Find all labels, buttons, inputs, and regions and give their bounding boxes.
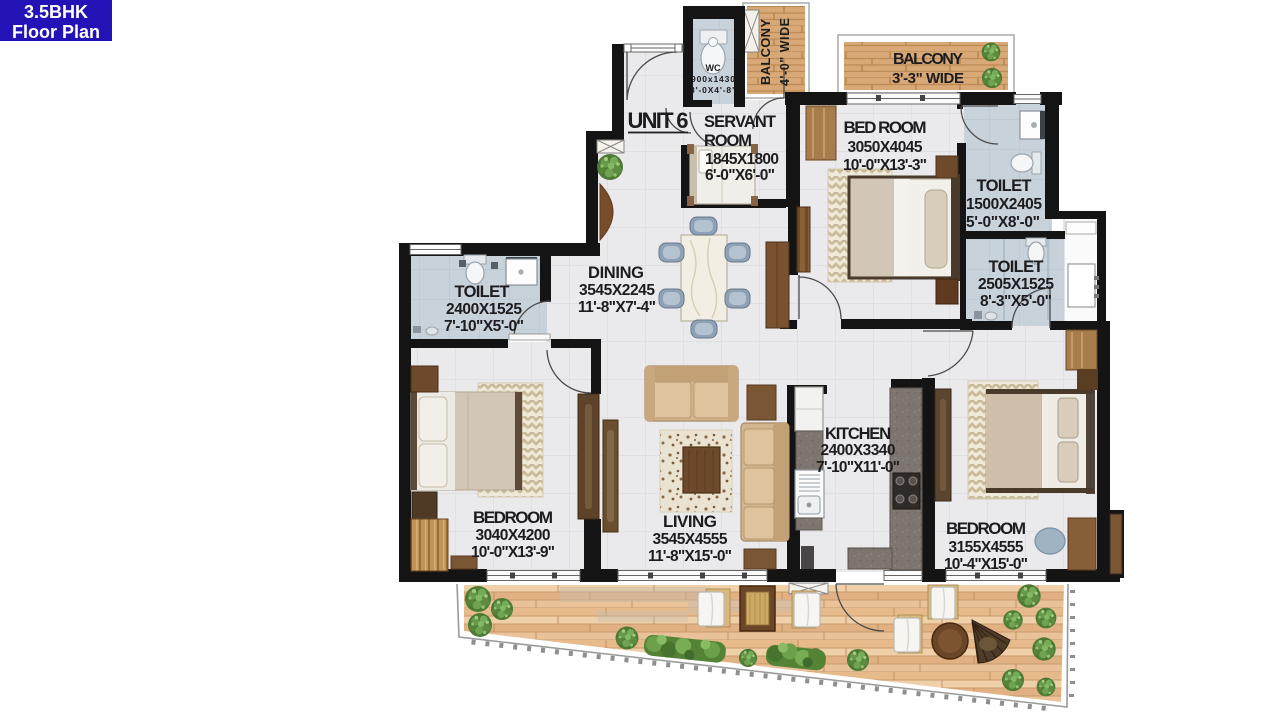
svg-text:3050X4045: 3050X4045 [848, 139, 923, 156]
svg-text:BEDROOM: BEDROOM [946, 519, 1026, 538]
svg-text:3'-0X4'-8": 3'-0X4'-8" [690, 85, 736, 95]
svg-text:11'-8"X15'-0": 11'-8"X15'-0" [648, 548, 732, 565]
svg-text:1500X2405: 1500X2405 [966, 196, 1042, 213]
svg-text:WC: WC [706, 63, 722, 73]
svg-text:BALCONY: BALCONY [758, 19, 773, 85]
svg-text:TOILET: TOILET [977, 177, 1032, 195]
svg-text:3'-3" WIDE: 3'-3" WIDE [892, 70, 964, 87]
svg-text:3155X4555: 3155X4555 [949, 539, 1024, 556]
svg-text:2505X1525: 2505X1525 [978, 276, 1054, 293]
svg-text:10'-0"X13'-9": 10'-0"X13'-9" [471, 544, 555, 561]
svg-text:10'-0"X13'-3": 10'-0"X13'-3" [843, 157, 927, 174]
svg-text:11'-8"X7'-4": 11'-8"X7'-4" [578, 299, 656, 316]
svg-text:BALCONY: BALCONY [893, 51, 963, 68]
svg-text:6'-0"X6'-0": 6'-0"X6'-0" [705, 167, 775, 184]
svg-text:8'-3"X5'-0": 8'-3"X5'-0" [980, 293, 1052, 310]
svg-text:TOILET: TOILET [989, 258, 1044, 276]
svg-text:SERVANT: SERVANT [704, 113, 776, 131]
svg-text:4'-0" WIDE: 4'-0" WIDE [778, 18, 792, 86]
svg-text:TOILET: TOILET [455, 283, 510, 301]
svg-text:2400X3340: 2400X3340 [821, 442, 896, 459]
svg-text:DINING: DINING [588, 264, 644, 282]
svg-text:5'-0"X8'-0": 5'-0"X8'-0" [966, 214, 1040, 231]
svg-text:BED ROOM: BED ROOM [844, 118, 927, 137]
svg-text:LIVING: LIVING [663, 512, 717, 531]
svg-text:10'-4"X15'-0": 10'-4"X15'-0" [944, 556, 1028, 573]
svg-text:UNIT 6: UNIT 6 [628, 108, 689, 133]
svg-text:BEDROOM: BEDROOM [473, 508, 553, 527]
svg-text:7'-10"X11'-0": 7'-10"X11'-0" [816, 459, 900, 476]
svg-text:ROOM: ROOM [704, 132, 752, 150]
svg-text:1845X1800: 1845X1800 [705, 151, 779, 168]
svg-text:2400X1525: 2400X1525 [446, 301, 522, 318]
svg-text:3040X4200: 3040X4200 [476, 527, 551, 544]
svg-text:900x1430: 900x1430 [691, 74, 735, 84]
svg-text:3545X4555: 3545X4555 [653, 531, 728, 548]
svg-text:7'-10"X5'-0": 7'-10"X5'-0" [444, 318, 524, 335]
svg-text:3545X2245: 3545X2245 [579, 282, 655, 299]
svg-text:KITCHEN: KITCHEN [825, 425, 891, 443]
